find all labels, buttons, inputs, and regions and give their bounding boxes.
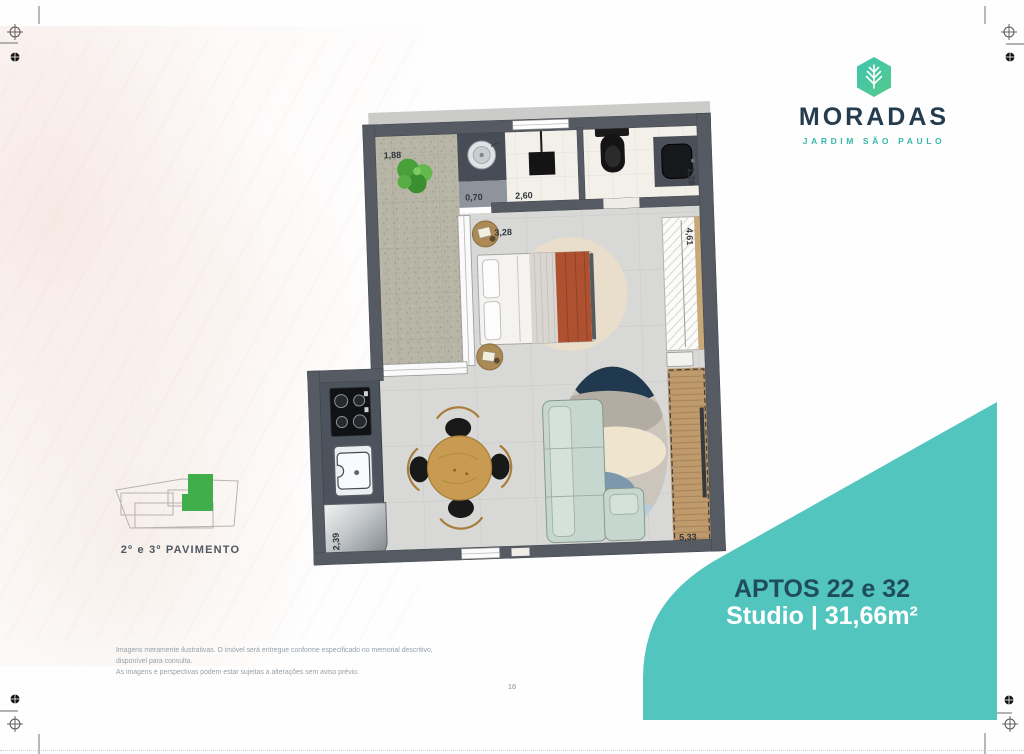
dim-service: 0,70 [465, 192, 483, 203]
brand-logo: MORADAS JARDIM SÃO PAULO [798, 55, 950, 146]
cooktop-icon [330, 387, 372, 436]
bullet-mark-icon [1004, 51, 1016, 63]
bullet-mark-icon [9, 693, 21, 705]
registration-icon [1001, 24, 1017, 40]
terrace [375, 130, 465, 365]
unit-subtitle: Studio | 31,66m² [672, 603, 972, 630]
dim-kitchen: 2,39 [331, 533, 342, 551]
dim-bedroom: 3,28 [494, 227, 512, 238]
disclaimer-line-2: As imagens e perspectivas podem estar su… [116, 667, 461, 678]
bullet-mark-icon [1003, 694, 1015, 706]
brand-name: MORADAS [798, 103, 950, 132]
dim-bathroom: 1,28 [686, 168, 697, 186]
kitchen [319, 379, 387, 557]
bottom-dotted-line [0, 750, 1024, 751]
kitchen-sink-icon [334, 445, 374, 496]
unit-title: APTOS 22 e 32 [672, 576, 972, 603]
key-plan-label: 2º e 3º PAVIMENTO [88, 544, 273, 556]
disclaimer-line-1: Imagens meramente ilustrativas. O imóvel… [116, 645, 461, 667]
dim-shower: 2,60 [515, 190, 533, 201]
building-outline [116, 479, 238, 528]
registration-icon [1002, 716, 1018, 732]
crop-marks-bottom-right [964, 684, 1024, 754]
balcony-deck [667, 367, 711, 544]
floor-plan: 1,88 0,70 2,60 1,28 3,28 4,61 2,39 5,33 [298, 99, 730, 573]
dim-wardrobe: 4,61 [684, 228, 695, 246]
page-number: 16 [472, 682, 552, 691]
bullet-mark-icon [9, 51, 21, 63]
crop-marks-top-left [0, 0, 60, 70]
crop-marks-top-right [964, 0, 1024, 70]
dim-balcony: 5,33 [679, 532, 697, 543]
nightstand-bottom [476, 343, 503, 370]
crop-marks-bottom-left [0, 684, 60, 754]
dim-terrace: 1,88 [383, 150, 401, 161]
registration-icon [7, 24, 23, 40]
disclaimer: Imagens meramente ilustrativas. O imóvel… [116, 645, 461, 678]
shelf-unit [667, 352, 693, 367]
brochure-page: MORADAS JARDIM SÃO PAULO [0, 0, 1024, 754]
unit-info: APTOS 22 e 32 Studio | 31,66m² [672, 576, 972, 630]
wardrobe [662, 216, 705, 350]
shower-fixture-icon [529, 151, 556, 175]
brand-subtitle: JARDIM SÃO PAULO [798, 136, 950, 146]
key-plan [112, 464, 252, 544]
leaf-hexagon-icon [854, 55, 894, 99]
registration-icon [7, 716, 23, 732]
bed [477, 251, 596, 345]
